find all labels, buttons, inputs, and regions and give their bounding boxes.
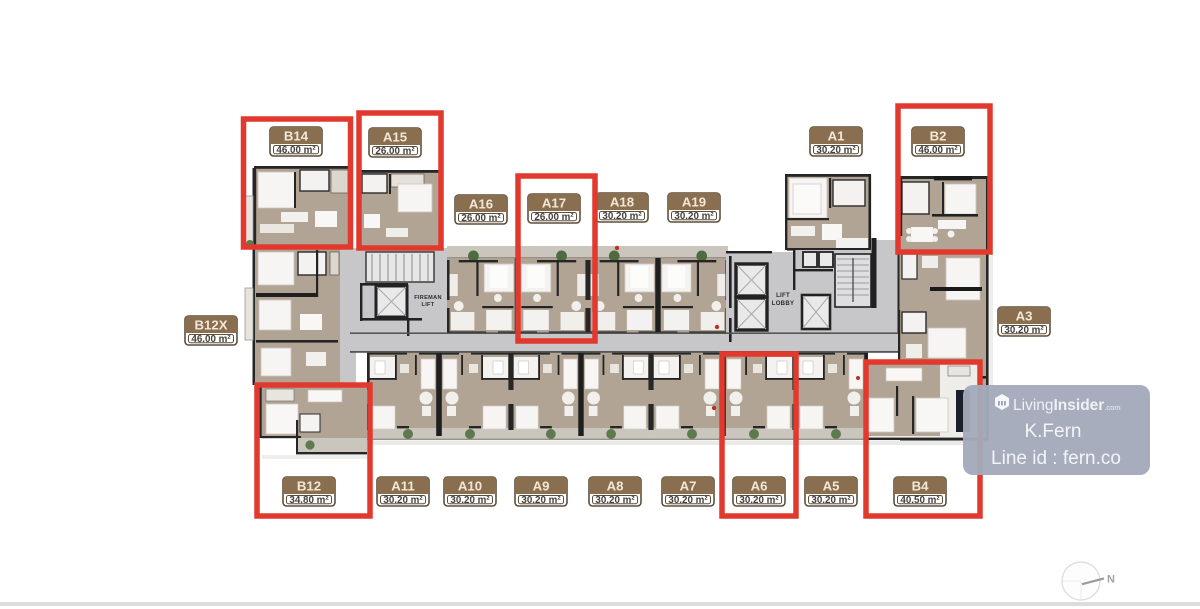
svg-text:A11: A11 (391, 479, 414, 494)
svg-text:34.80 m²: 34.80 m² (289, 495, 329, 506)
svg-text:30.20 m²: 30.20 m² (1004, 325, 1044, 336)
svg-text:A7: A7 (680, 479, 697, 494)
svg-text:K.Fern: K.Fern (1024, 421, 1081, 442)
svg-text:A18: A18 (610, 195, 634, 210)
svg-text:26.00 m²: 26.00 m² (461, 213, 501, 224)
svg-text:A6: A6 (751, 479, 768, 494)
svg-text:30.20 m²: 30.20 m² (595, 495, 635, 506)
svg-text:40.50 m²: 40.50 m² (900, 495, 940, 506)
svg-text:30.20 m²: 30.20 m² (816, 145, 856, 156)
svg-text:A1: A1 (828, 129, 845, 144)
svg-text:30.20 m²: 30.20 m² (602, 211, 642, 222)
svg-text:A10: A10 (458, 479, 482, 494)
svg-text:30.20 m²: 30.20 m² (811, 495, 851, 506)
svg-text:A19: A19 (682, 195, 706, 210)
svg-text:A8: A8 (607, 479, 624, 494)
svg-text:A16: A16 (469, 197, 493, 212)
svg-text:A15: A15 (383, 130, 407, 145)
svg-text:30.20 m²: 30.20 m² (674, 211, 714, 222)
svg-text:B4: B4 (912, 479, 930, 494)
svg-text:46.00 m²: 46.00 m² (276, 145, 316, 156)
svg-text:FIREMAN: FIREMAN (414, 295, 442, 301)
svg-text:LIFT: LIFT (421, 302, 434, 308)
svg-text:B2: B2 (930, 129, 947, 144)
svg-text:A5: A5 (823, 479, 840, 494)
svg-text:B12X: B12X (195, 318, 228, 333)
svg-text:LOBBY: LOBBY (772, 301, 795, 307)
svg-text:Line id : fern.co: Line id : fern.co (991, 448, 1121, 469)
svg-text:B14: B14 (284, 129, 309, 144)
svg-text:N: N (1107, 574, 1115, 586)
svg-text:B12: B12 (297, 479, 321, 494)
svg-text:26.00 m²: 26.00 m² (534, 212, 574, 223)
svg-text:26.00 m²: 26.00 m² (375, 146, 415, 157)
svg-text:46.00 m²: 46.00 m² (918, 145, 958, 156)
svg-text:A3: A3 (1016, 309, 1033, 324)
svg-text:30.20 m²: 30.20 m² (668, 495, 708, 506)
svg-text:30.20 m²: 30.20 m² (383, 495, 423, 506)
svg-text:30.20 m²: 30.20 m² (450, 495, 490, 506)
svg-text:30.20 m²: 30.20 m² (521, 495, 561, 506)
svg-text:46.00 m²: 46.00 m² (191, 334, 231, 345)
svg-text:30.20 m²: 30.20 m² (739, 495, 779, 506)
svg-text:A17: A17 (542, 196, 566, 211)
svg-text:LIFT: LIFT (776, 293, 790, 299)
svg-text:A9: A9 (533, 479, 550, 494)
